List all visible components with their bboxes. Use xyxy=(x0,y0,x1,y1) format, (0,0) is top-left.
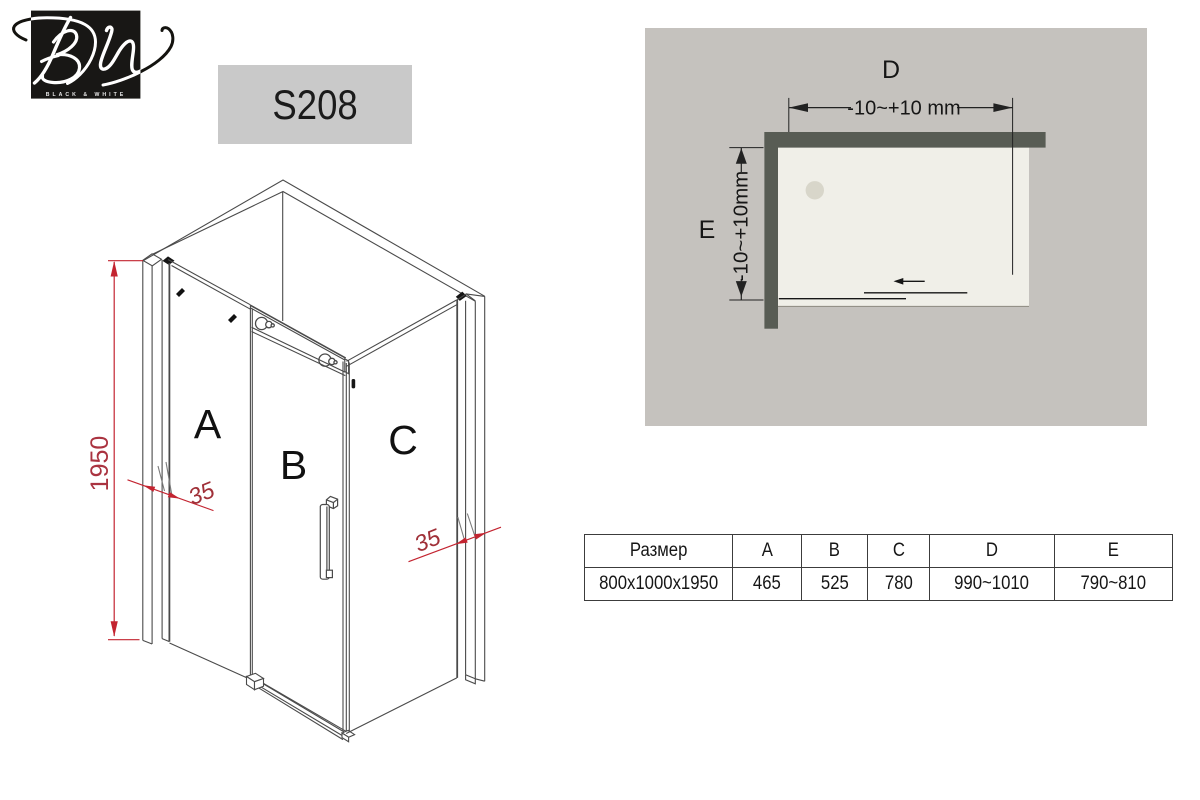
svg-text:35: 35 xyxy=(411,523,445,557)
svg-text:-10~+10 mm: -10~+10 mm xyxy=(847,98,960,120)
svg-text:1950: 1950 xyxy=(86,436,114,492)
svg-text:A: A xyxy=(194,401,222,447)
svg-text:BLACK & WHITE: BLACK & WHITE xyxy=(46,92,127,98)
svg-text:35: 35 xyxy=(185,476,219,510)
svg-text:D: D xyxy=(882,56,900,84)
svg-text:E: E xyxy=(699,216,716,244)
svg-text:C: C xyxy=(388,417,418,463)
svg-text:B: B xyxy=(280,442,307,488)
svg-text:-10~+10mm: -10~+10mm xyxy=(729,171,752,282)
